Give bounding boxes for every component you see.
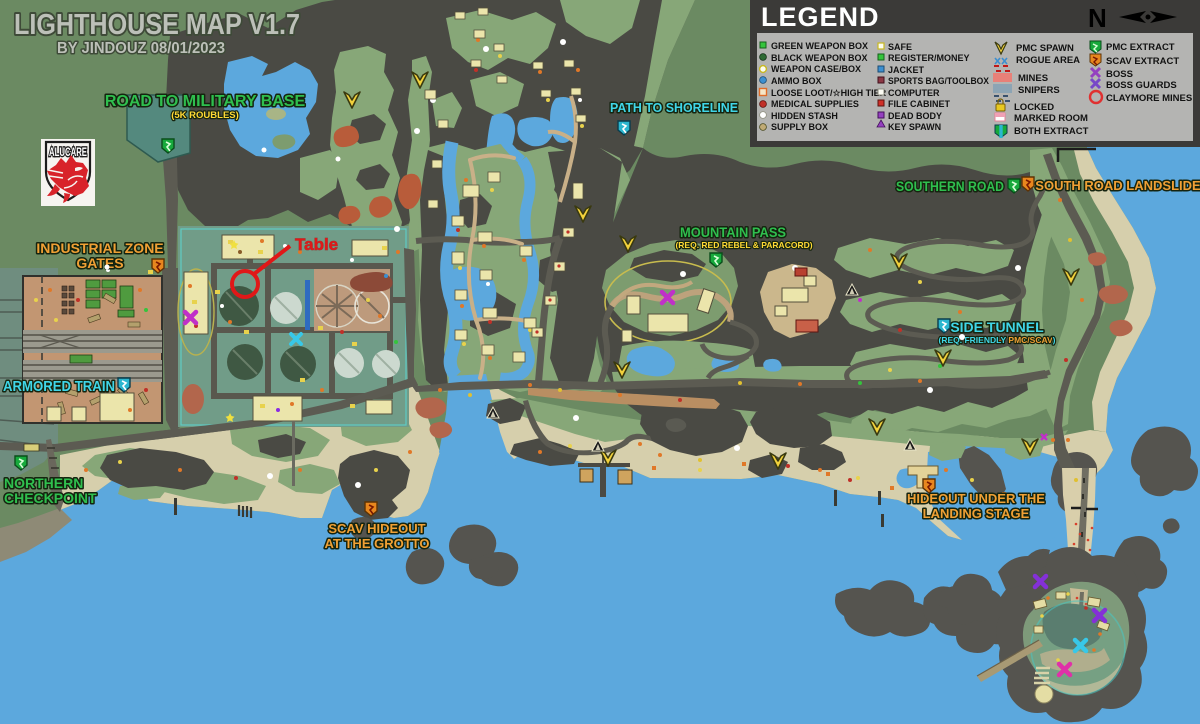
- svg-text:BOSS: BOSS: [1106, 69, 1133, 80]
- svg-text:AT THE GROTTO: AT THE GROTTO: [325, 536, 430, 551]
- svg-text:(5K ROUBLES): (5K ROUBLES): [171, 110, 239, 121]
- svg-text:HIDEOUT UNDER THE: HIDEOUT UNDER THE: [907, 491, 1045, 506]
- svg-text:AMMO BOX: AMMO BOX: [771, 76, 822, 86]
- svg-text:(REQ. RED REBEL & PARACORD): (REQ. RED REBEL & PARACORD): [675, 240, 812, 250]
- svg-text:ROGUE AREA: ROGUE AREA: [1016, 55, 1080, 66]
- svg-text:LEGEND: LEGEND: [761, 2, 880, 32]
- svg-text:BLACK WEAPON BOX: BLACK WEAPON BOX: [771, 53, 868, 63]
- svg-text:SOUTH ROAD LANDSLIDE: SOUTH ROAD LANDSLIDE: [1035, 178, 1200, 193]
- svg-text:KEY SPAWN: KEY SPAWN: [888, 122, 941, 132]
- svg-text:GATES: GATES: [76, 255, 123, 271]
- svg-text:REGISTER/MONEY: REGISTER/MONEY: [888, 53, 970, 63]
- svg-text:SIDE TUNNEL: SIDE TUNNEL: [950, 319, 1044, 335]
- svg-text:COMPUTER: COMPUTER: [888, 88, 940, 98]
- svg-text:BOTH EXTRACT: BOTH EXTRACT: [1014, 126, 1089, 137]
- svg-text:DEAD BODY: DEAD BODY: [888, 111, 942, 121]
- svg-text:N: N: [1088, 3, 1107, 33]
- svg-text:FILE CABINET: FILE CABINET: [888, 99, 951, 109]
- svg-text:SNIPERS: SNIPERS: [1018, 85, 1060, 96]
- svg-text:MARKED ROOM: MARKED ROOM: [1014, 113, 1088, 124]
- svg-text:ROAD TO MILITARY BASE: ROAD TO MILITARY BASE: [105, 93, 306, 110]
- svg-text:SCAV HIDEOUT: SCAV HIDEOUT: [328, 521, 425, 536]
- svg-text:MOUNTAIN PASS: MOUNTAIN PASS: [680, 224, 786, 240]
- svg-text:WEAPON CASE/BOX: WEAPON CASE/BOX: [771, 64, 861, 74]
- svg-text:LOCKED: LOCKED: [1014, 102, 1054, 113]
- svg-text:ARMORED TRAIN: ARMORED TRAIN: [3, 378, 115, 395]
- svg-text:JACKET: JACKET: [888, 65, 925, 75]
- svg-text:(REQ. FRIENDLY PMC/SCAV): (REQ. FRIENDLY PMC/SCAV): [939, 335, 1056, 345]
- svg-text:LIGHTHOUSE MAP V1.7: LIGHTHOUSE MAP V1.7: [14, 9, 300, 41]
- svg-text:CLAYMORE MINES: CLAYMORE MINES: [1106, 93, 1192, 104]
- svg-text:LANDING STAGE: LANDING STAGE: [923, 506, 1030, 521]
- svg-text:SCAV EXTRACT: SCAV EXTRACT: [1106, 56, 1179, 67]
- svg-text:GREEN WEAPON BOX: GREEN WEAPON BOX: [771, 41, 868, 51]
- svg-text:ALUCARE: ALUCARE: [49, 145, 87, 159]
- svg-text:SOUTHERN ROAD: SOUTHERN ROAD: [896, 179, 1004, 194]
- svg-text:LOOSE LOOT/☆HIGH TIER: LOOSE LOOT/☆HIGH TIER: [771, 88, 887, 98]
- svg-text:PMC EXTRACT: PMC EXTRACT: [1106, 42, 1175, 53]
- svg-text:PATH TO SHORELINE: PATH TO SHORELINE: [610, 100, 738, 115]
- svg-text:NORTHERN: NORTHERN: [4, 475, 83, 491]
- svg-text:MINES: MINES: [1018, 73, 1048, 84]
- svg-text:SUPPLY BOX: SUPPLY BOX: [771, 122, 828, 132]
- svg-text:MEDICAL SUPPLIES: MEDICAL SUPPLIES: [771, 99, 859, 109]
- svg-text:Table: Table: [295, 235, 338, 254]
- svg-text:HIDDEN STASH: HIDDEN STASH: [771, 111, 838, 121]
- svg-text:SAFE: SAFE: [888, 42, 912, 52]
- svg-text:INDUSTRIAL ZONE: INDUSTRIAL ZONE: [36, 240, 163, 256]
- svg-text:PMC SPAWN: PMC SPAWN: [1016, 43, 1074, 54]
- svg-text:BOSS GUARDS: BOSS GUARDS: [1106, 80, 1177, 91]
- svg-text:BY JINDOUZ 08/01/2023: BY JINDOUZ 08/01/2023: [57, 40, 225, 57]
- svg-text:CHECKPOINT: CHECKPOINT: [4, 490, 97, 506]
- svg-text:SPORTS BAG/TOOLBOX: SPORTS BAG/TOOLBOX: [888, 76, 989, 86]
